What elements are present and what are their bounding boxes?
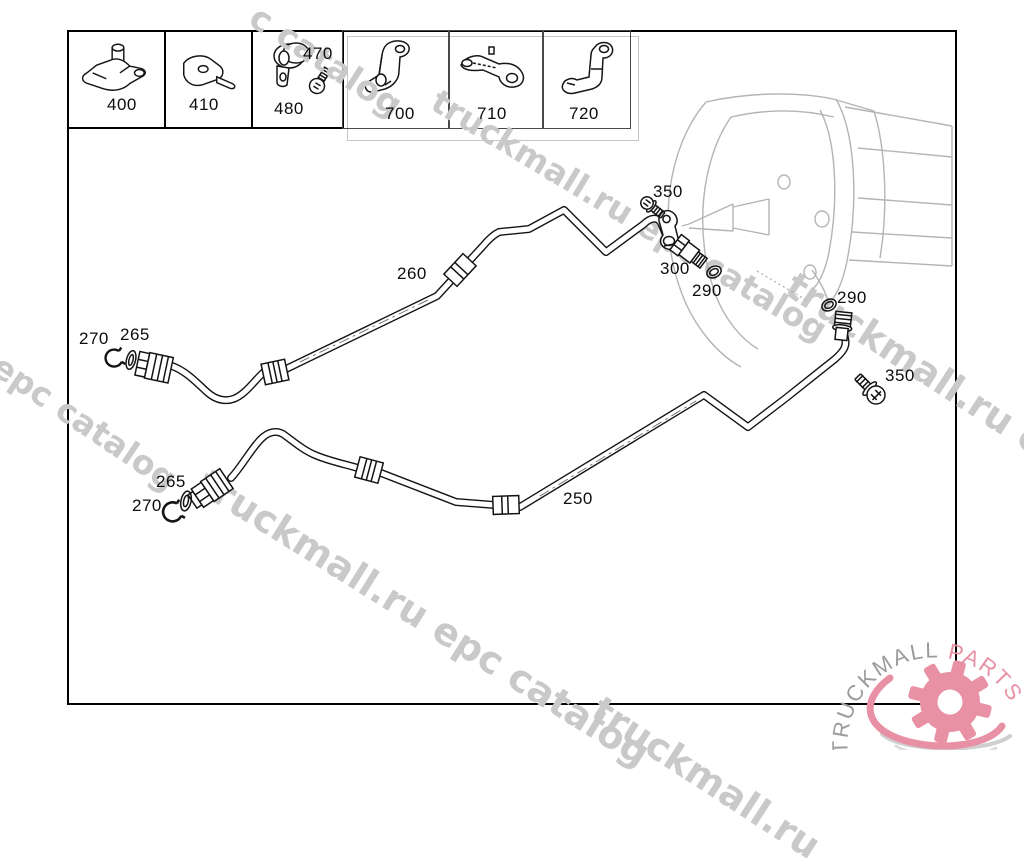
callout-290-upper: 290 xyxy=(692,281,722,301)
callout-265-lower: 265 xyxy=(156,472,186,492)
part-400-clamp-icon xyxy=(73,36,161,104)
parts-catalog-page: { "watermark": { "text": "truckmall.ru e… xyxy=(0,0,1024,750)
callout-470: 470 xyxy=(303,44,333,64)
callout-300: 300 xyxy=(660,259,690,279)
logo-swirl-gray xyxy=(882,734,1010,749)
part-label-720: 720 xyxy=(569,104,599,124)
part-label-480: 480 xyxy=(274,99,304,119)
part-720-z-bracket-icon xyxy=(547,35,627,107)
callout-350-upper: 350 xyxy=(653,182,683,202)
part-410-clip-icon xyxy=(169,36,249,104)
callout-250: 250 xyxy=(563,489,593,509)
logo-text-parts: PARTS xyxy=(946,639,1024,707)
part-label-700: 700 xyxy=(385,104,415,124)
part-label-400: 400 xyxy=(107,95,137,115)
callout-265-upper: 265 xyxy=(120,325,150,345)
part-label-410: 410 xyxy=(189,95,219,115)
callout-270-lower: 270 xyxy=(132,496,162,516)
callout-350-right: 350 xyxy=(885,366,915,386)
watermark-text: truckmall.ru xyxy=(585,690,827,865)
callout-290-right: 290 xyxy=(837,288,867,308)
callout-270-upper: 270 xyxy=(79,329,109,349)
callout-260: 260 xyxy=(397,264,427,284)
part-label-710: 710 xyxy=(477,104,507,124)
logo-swirl-gray-2 xyxy=(896,746,996,750)
